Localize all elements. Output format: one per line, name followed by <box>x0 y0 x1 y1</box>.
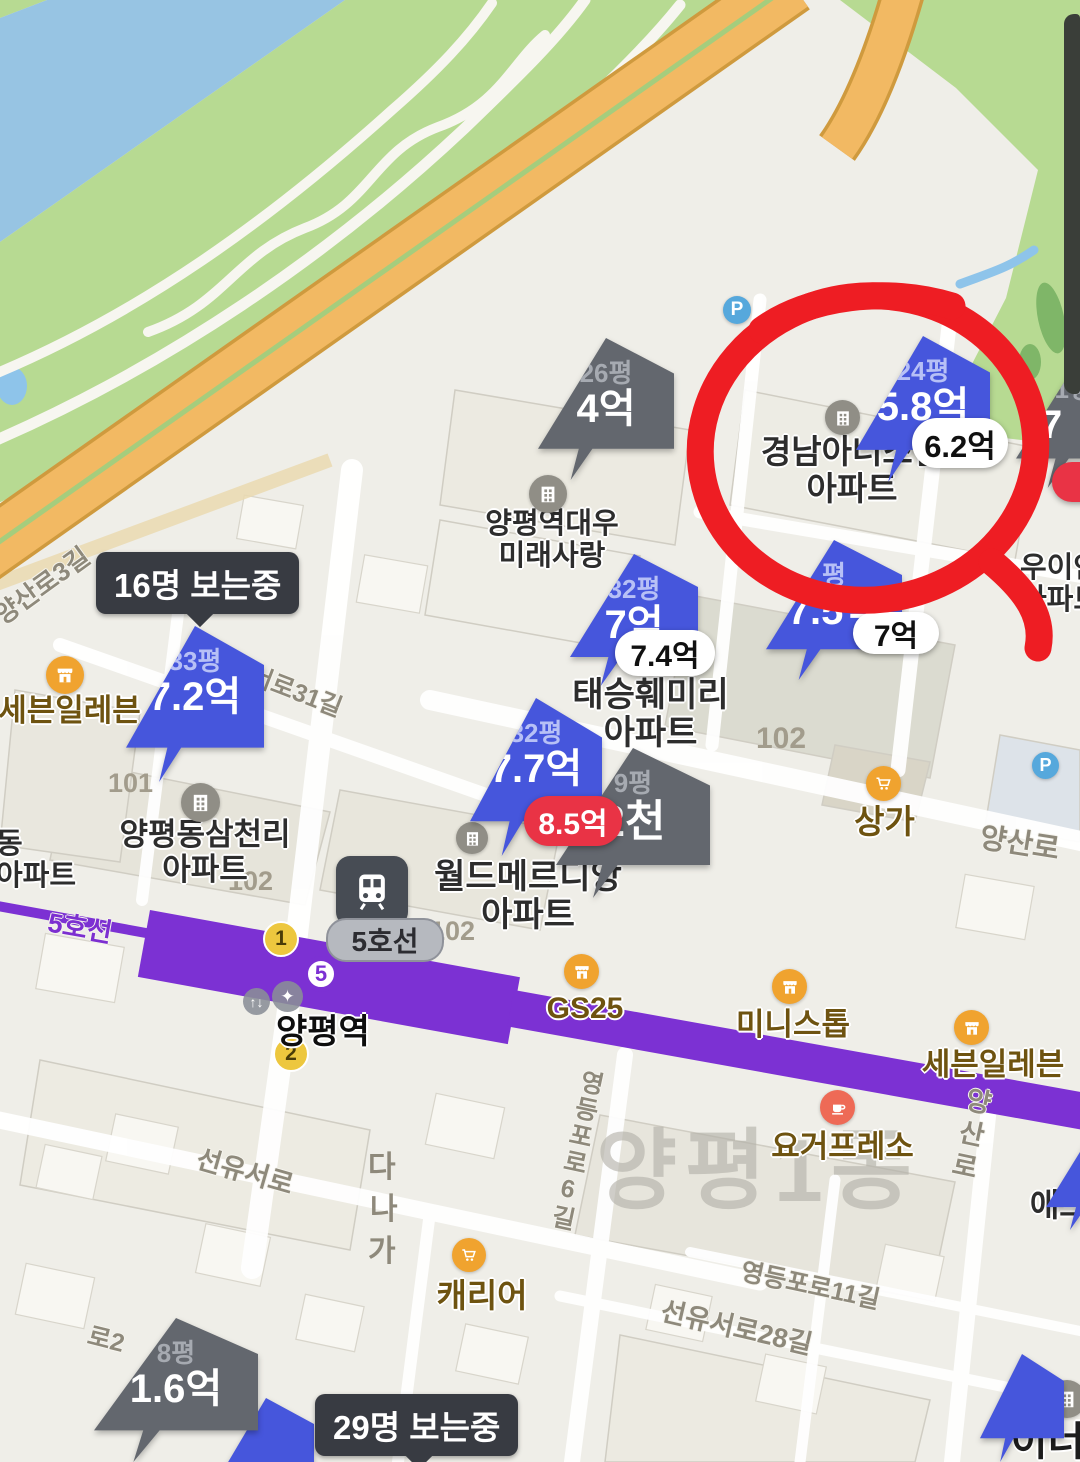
store-icon <box>772 969 807 1004</box>
pin-size: 32평 <box>510 720 563 747</box>
store-label-sangga: 상가 <box>842 804 927 841</box>
apartment-label-samchonri: 양평동삼천리 아파트 <box>100 818 310 887</box>
store-label-seven-right: 세븐일레븐 <box>898 1048 1080 1083</box>
price-pin-75[interactable]: 평 7.5억 <box>766 540 902 680</box>
pin-size: 9평 <box>614 770 652 797</box>
apartment-label-line: 아파트 <box>100 853 310 888</box>
pin-size: 24평 <box>897 358 950 385</box>
shopping-cart-icon <box>866 766 901 801</box>
block-letter-ga: 가 <box>368 1226 396 1270</box>
pin-price: 7.2억 <box>149 675 241 720</box>
pin-size: 평 <box>822 562 846 589</box>
pin-size: 33평 <box>169 648 222 675</box>
screen-edge-strip <box>1064 14 1080 394</box>
block-number-102c: 102 <box>756 722 806 756</box>
elevator-icon: ↑↓ <box>243 988 270 1015</box>
apartment-label-line: 아파트 <box>1000 584 1080 616</box>
subway-line-bubble: 5호선 <box>326 918 444 962</box>
viewers-badge-16: 16명 보는중 <box>96 552 299 614</box>
pin-size: 8평 <box>157 1340 195 1367</box>
apartment-label-left-edge: 동 아파트 <box>0 828 86 893</box>
subway-line5-badge: 5 <box>303 956 339 992</box>
store-label-gs25: GS25 <box>540 992 630 1026</box>
price-bubble-85[interactable]: 8.5억 <box>524 796 622 846</box>
price-bubble-7[interactable]: 7억 <box>853 612 939 654</box>
apartment-label-uian: 우이안 아파트 <box>1000 552 1080 617</box>
price-pin-samchonri[interactable]: 33평 7.2억 <box>126 626 264 782</box>
price-pin-8[interactable]: 8평 1.6억 <box>94 1318 258 1462</box>
pin-price: 1.6억 <box>130 1367 222 1412</box>
store-icon <box>46 656 84 694</box>
building-icon <box>529 475 567 513</box>
store-label-ministop: 미니스톱 <box>718 1008 868 1043</box>
apartment-label-line: 양평동삼천리 <box>100 818 310 853</box>
parking-icon: P <box>1032 752 1059 779</box>
pin-size: 26평 <box>580 360 633 387</box>
pin-price: 7 <box>1040 403 1062 448</box>
building-icon <box>181 783 220 822</box>
price-pin-plain[interactable] <box>1046 1126 1080 1230</box>
pin-price: 4억 <box>576 387 635 432</box>
parking-icon: P <box>723 296 751 324</box>
store-label-yogurpresso: 요거프레소 <box>760 1130 925 1165</box>
viewers-badge-29: 29명 보는중 <box>315 1394 518 1456</box>
block-letter-da: 다 <box>368 1142 396 1186</box>
shopping-cart-icon <box>452 1238 486 1272</box>
store-label-carrier: 캐리어 <box>412 1278 552 1315</box>
store-icon <box>954 1010 989 1045</box>
price-bubble-74[interactable]: 7.4억 <box>615 630 715 676</box>
station-name: 양평역 <box>276 1004 370 1053</box>
store-icon <box>564 954 599 989</box>
apartment-label-line: 양평역대우 <box>462 508 642 540</box>
block-letter-na: 나 <box>370 1184 398 1228</box>
apartment-label-line: 우이안 <box>1000 552 1080 584</box>
subway-station-icon <box>336 856 408 926</box>
price-pin-daewoo[interactable]: 26평 4억 <box>538 338 674 480</box>
price-pin-plain[interactable] <box>980 1354 1064 1462</box>
price-bubble-62[interactable]: 6.2억 <box>912 418 1008 468</box>
store-label-seven-left: 세븐일레븐 <box>0 694 147 729</box>
building-icon <box>825 400 860 435</box>
apartment-label-line: 동 <box>0 828 86 860</box>
map-canvas[interactable]: 양평1동 양산로3길 서로31길 양산로 양산로 영등포로6길 선유서로 선유서… <box>0 0 1080 1462</box>
pin-size: 32평 <box>608 576 661 603</box>
coffee-icon <box>820 1090 855 1125</box>
apartment-label-line: 아파트 <box>0 860 86 892</box>
subway-exit-1[interactable]: 1 <box>263 921 299 957</box>
